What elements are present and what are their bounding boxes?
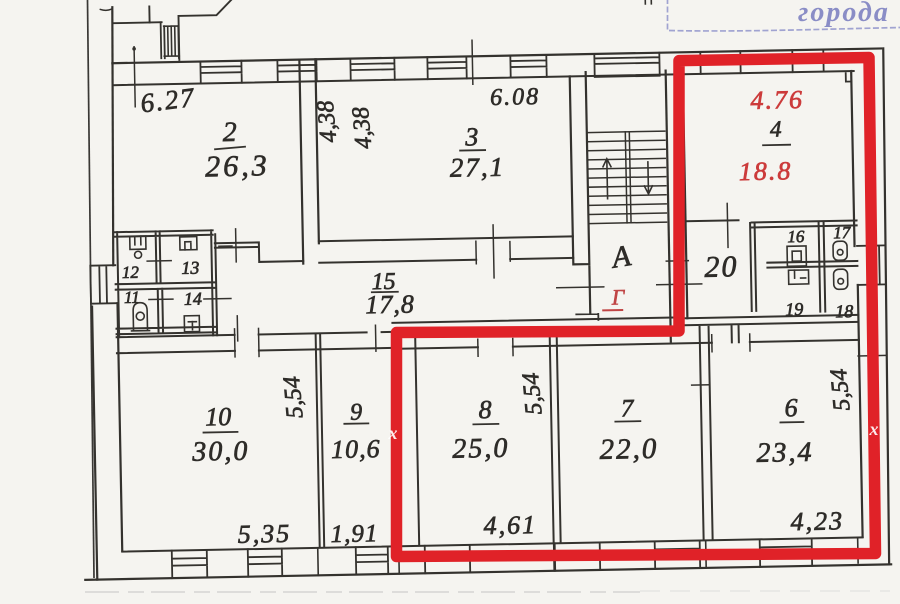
svg-text:5,54: 5,54 xyxy=(279,375,309,419)
svg-text:6.08: 6.08 xyxy=(490,84,540,111)
svg-text:3: 3 xyxy=(464,122,479,151)
svg-text:4,38: 4,38 xyxy=(313,100,343,144)
svg-text:20: 20 xyxy=(704,250,739,284)
svg-text:18.8: 18.8 xyxy=(739,156,793,186)
svg-text:5,54: 5,54 xyxy=(826,368,856,412)
svg-text:26,3: 26,3 xyxy=(205,149,270,183)
svg-text:18: 18 xyxy=(835,301,853,321)
svg-text:23,4: 23,4 xyxy=(756,437,814,469)
svg-text:4,61: 4,61 xyxy=(483,510,537,540)
svg-text:5,54: 5,54 xyxy=(518,372,548,416)
svg-text:19: 19 xyxy=(785,299,803,319)
svg-text:12: 12 xyxy=(122,263,140,282)
svg-text:13: 13 xyxy=(181,258,199,278)
svg-text:х: х xyxy=(388,423,398,443)
svg-text:14: 14 xyxy=(184,289,202,309)
svg-text:4.76: 4.76 xyxy=(750,85,804,115)
svg-text:16: 16 xyxy=(787,227,805,246)
svg-text:8: 8 xyxy=(478,395,492,424)
svg-text:4,23: 4,23 xyxy=(790,506,844,536)
svg-text:1,91: 1,91 xyxy=(330,520,378,548)
svg-text:10,6: 10,6 xyxy=(331,434,381,464)
svg-text:города: города xyxy=(798,0,890,28)
svg-text:6: 6 xyxy=(784,393,798,422)
svg-text:2: 2 xyxy=(222,117,237,148)
svg-text:27,1: 27,1 xyxy=(450,152,506,183)
svg-text:17: 17 xyxy=(833,223,852,242)
svg-text:х: х xyxy=(869,419,879,439)
svg-text:4,38: 4,38 xyxy=(348,106,378,150)
svg-text:7: 7 xyxy=(621,395,636,422)
svg-text:11: 11 xyxy=(124,288,140,307)
svg-text:9: 9 xyxy=(350,399,362,425)
svg-text:4: 4 xyxy=(770,116,782,141)
svg-text:5,35: 5,35 xyxy=(237,519,291,549)
svg-text:17,8: 17,8 xyxy=(365,289,415,319)
svg-text:10: 10 xyxy=(205,402,232,431)
svg-text:30,0: 30,0 xyxy=(191,436,250,468)
svg-text:Г: Г xyxy=(610,284,625,309)
svg-text:22,0: 22,0 xyxy=(599,433,658,466)
svg-text:25,0: 25,0 xyxy=(452,433,510,465)
